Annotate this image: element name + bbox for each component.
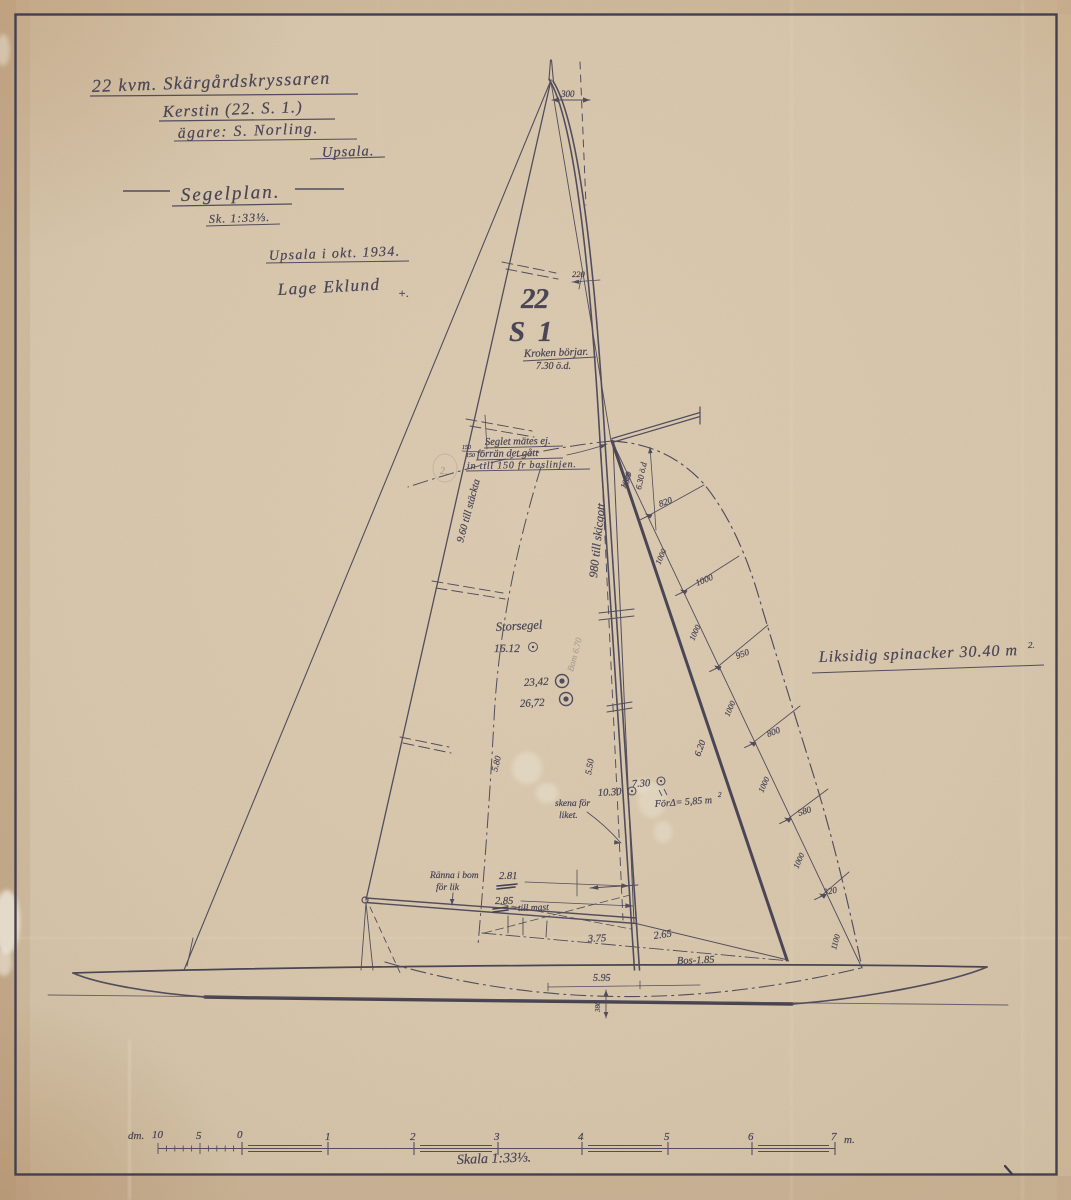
svg-text:S: S — [509, 316, 525, 348]
svg-text:1: 1 — [538, 316, 553, 348]
svg-text:Sk. 1:33⅓.: Sk. 1:33⅓. — [209, 210, 271, 226]
svg-text:3.75: 3.75 — [587, 933, 607, 945]
svg-text:1: 1 — [325, 1131, 331, 1143]
svg-text:150: 150 — [466, 453, 475, 459]
svg-text:m.: m. — [844, 1134, 855, 1146]
svg-text:7.30: 7.30 — [632, 778, 652, 790]
svg-text:Bos-1.85: Bos-1.85 — [677, 955, 715, 967]
svg-text:10.30: 10.30 — [598, 787, 623, 799]
svg-text:liket.: liket. — [559, 811, 578, 821]
svg-text:2.85: 2.85 — [495, 896, 513, 907]
svg-text:2,: 2, — [440, 466, 448, 477]
svg-text:dm.: dm. — [128, 1130, 144, 1142]
svg-text:till mast: till mast — [518, 903, 550, 914]
svg-text:150: 150 — [462, 445, 471, 451]
svg-text:16.12: 16.12 — [494, 643, 520, 655]
svg-text:Storsegel: Storsegel — [495, 618, 543, 634]
svg-text:0: 0 — [237, 1129, 243, 1141]
svg-text:7: 7 — [831, 1131, 837, 1143]
svg-text:3: 3 — [493, 1131, 500, 1143]
svg-text:5: 5 — [664, 1131, 670, 1143]
svg-text:300: 300 — [560, 89, 575, 99]
svg-text:26,72: 26,72 — [520, 697, 546, 710]
svg-text:2.: 2. — [1028, 640, 1035, 650]
svg-text:förrän det gått: förrän det gått — [477, 448, 540, 460]
svg-text:2: 2 — [718, 791, 722, 799]
svg-text:4: 4 — [578, 1131, 584, 1143]
svg-text:220: 220 — [572, 269, 586, 279]
svg-text:Ränna i bom: Ränna i bom — [429, 871, 479, 881]
svg-text:10: 10 — [152, 1129, 164, 1141]
svg-text:23,42: 23,42 — [524, 676, 550, 689]
svg-text:5: 5 — [196, 1130, 202, 1142]
svg-text:22: 22 — [520, 283, 549, 315]
svg-text:+.: +. — [398, 286, 409, 300]
svg-text:skena för: skena för — [555, 798, 590, 809]
svg-text:Skala 1:33⅓.: Skala 1:33⅓. — [457, 1150, 532, 1168]
svg-text:2.81: 2.81 — [499, 871, 517, 882]
svg-text:380: 380 — [594, 1001, 602, 1013]
svg-text:6: 6 — [748, 1131, 754, 1143]
svg-text:2: 2 — [410, 1131, 416, 1143]
svg-text:5.95: 5.95 — [593, 973, 611, 984]
svg-text:för lik: för lik — [436, 882, 460, 893]
svg-text:7.30 ö.d.: 7.30 ö.d. — [536, 361, 571, 372]
svg-text:Segelplan.: Segelplan. — [180, 182, 280, 206]
